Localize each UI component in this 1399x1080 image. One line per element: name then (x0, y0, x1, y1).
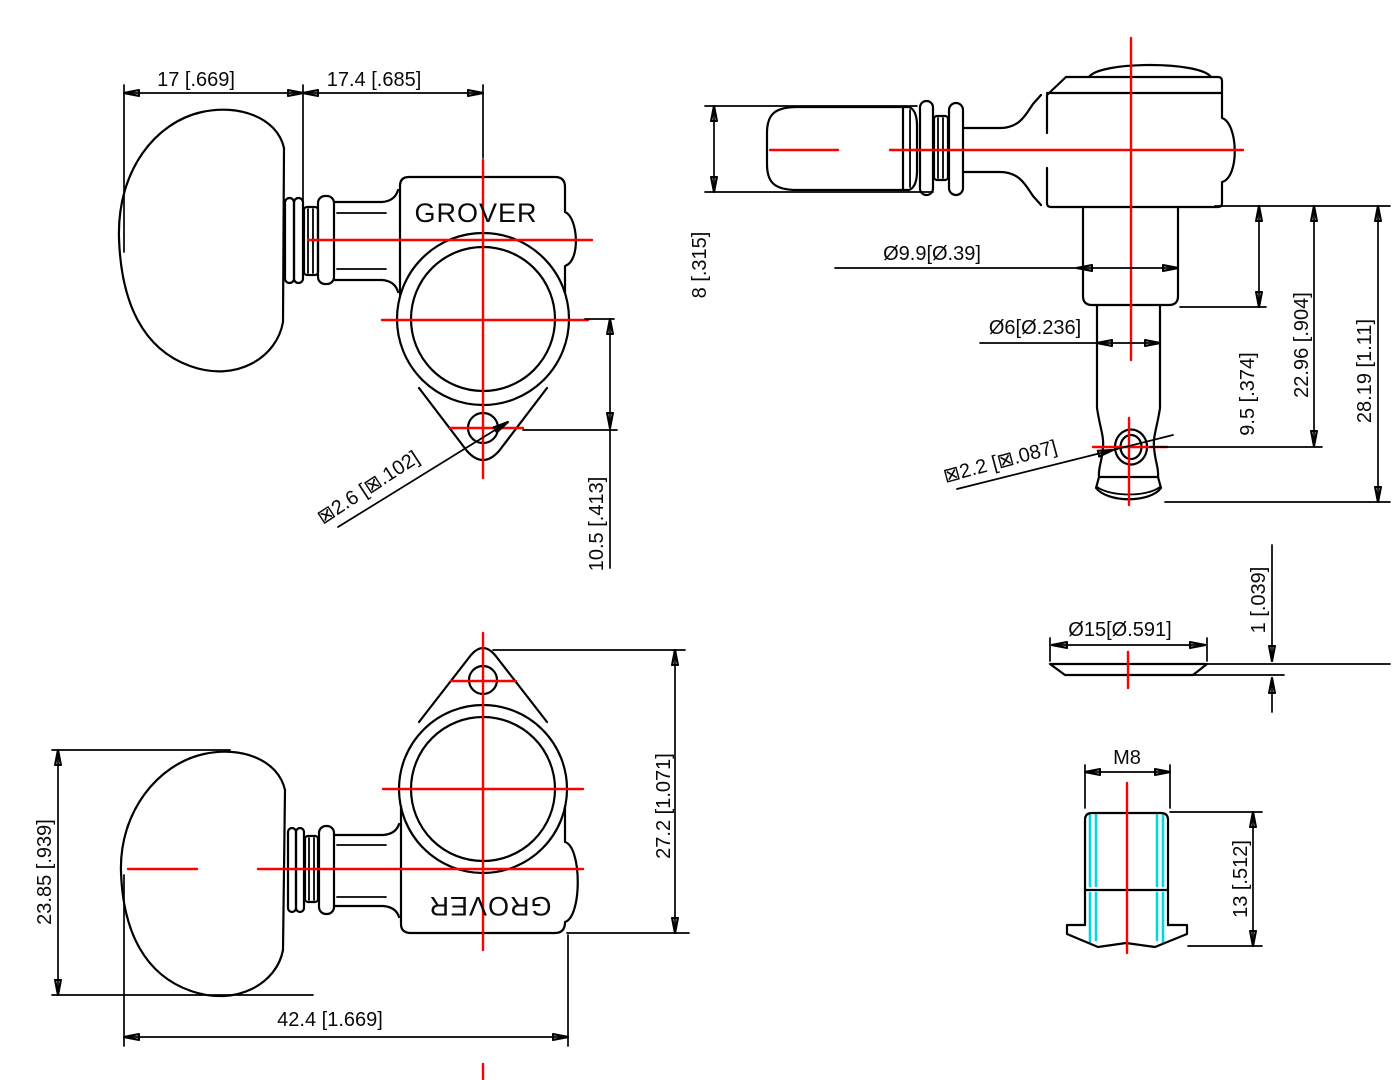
dim-thread-label: M8 (1113, 747, 1141, 769)
dim-body-height-label: 27.2 [1.071] (653, 753, 675, 859)
body-dome (1089, 65, 1211, 77)
dim-post-offset-label: 17.4 [.685] (327, 69, 422, 91)
shaft-rear (334, 824, 399, 917)
front-view: 17 [.669] 17.4 [.685] GROVER ⊠2.6 [⊠.102… (119, 69, 617, 571)
dim-screw-hole-label: ⊠2.6 [⊠.102] (314, 447, 424, 529)
knob-outline (119, 110, 284, 372)
brand-text-rear: GROVER (428, 891, 551, 921)
washer-view: Ø15[Ø.591] 1 [.039] (1050, 545, 1390, 712)
tuner-drawing: 17 [.669] 17.4 [.685] GROVER ⊠2.6 [⊠.102… (0, 0, 1399, 1080)
dim-knob-height-label: 23.85 [.939] (34, 819, 56, 925)
dim-post-dia-label: Ø9.9[Ø.39] (883, 243, 981, 265)
dim-hole-drop-label: 10.5 [.413] (586, 477, 608, 572)
collar-rings-side (920, 101, 963, 195)
dimensions-rear (52, 650, 689, 1046)
knob-outline-rear (121, 752, 285, 996)
dim-shaft-len-label: 22.96 [.904] (1291, 292, 1313, 398)
body-outline (400, 177, 576, 295)
body-side (1047, 77, 1235, 207)
rear-view: 23.85 [.939] 42.4 [1.669] 27.2 [1.071] G… (34, 633, 689, 1079)
side-view: 8 [.315] Ø9.9[Ø.39] Ø6[Ø.236] ⊠2.2 [⊠.08… (689, 38, 1390, 505)
dim-bushing-height-label: 13 [.512] (1230, 840, 1252, 918)
dim-knob-width-label: 17 [.669] (157, 69, 235, 91)
knob-side (767, 107, 917, 190)
dim-washer-dia-label: Ø15[Ø.591] (1068, 619, 1171, 641)
dim-knob-thickness-label: 8 [.315] (689, 232, 711, 299)
bushing-view: M8 13 [.512] (1067, 747, 1262, 953)
dim-post-len-label: 9.5 [.374] (1237, 352, 1259, 435)
drawing-canvas: 17 [.669] 17.4 [.685] GROVER ⊠2.6 [⊠.102… (0, 0, 1399, 1080)
dim-overall-width-label: 42.4 [1.669] (277, 1009, 383, 1031)
dim-total-len-label: 28.19 [1.11] (1354, 319, 1376, 423)
brand-text-front: GROVER (414, 198, 537, 228)
dim-washer-thickness-label: 1 [.039] (1248, 567, 1270, 634)
dim-string-hole-label: ⊠2.2 [⊠.087] (941, 436, 1060, 488)
dim-shaft-dia-label: Ø6[Ø.236] (989, 317, 1081, 339)
